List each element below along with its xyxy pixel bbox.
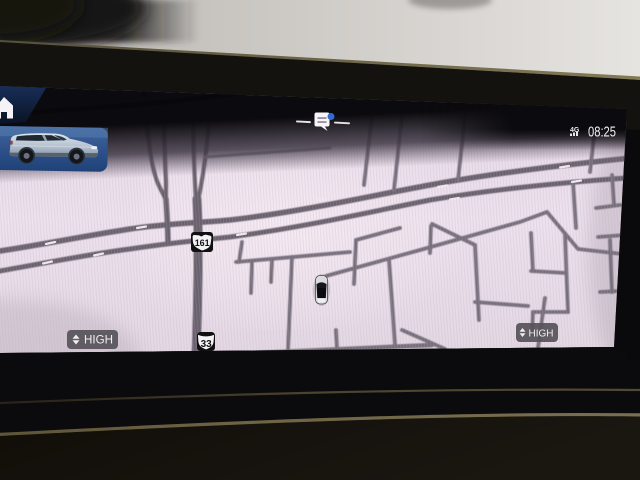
svg-text:33: 33 <box>201 339 213 350</box>
svg-text:HIGH: HIGH <box>84 335 113 347</box>
svg-text:HIGH: HIGH <box>529 328 554 340</box>
svg-text:08:25: 08:25 <box>588 125 616 141</box>
svg-text:161: 161 <box>195 238 210 248</box>
